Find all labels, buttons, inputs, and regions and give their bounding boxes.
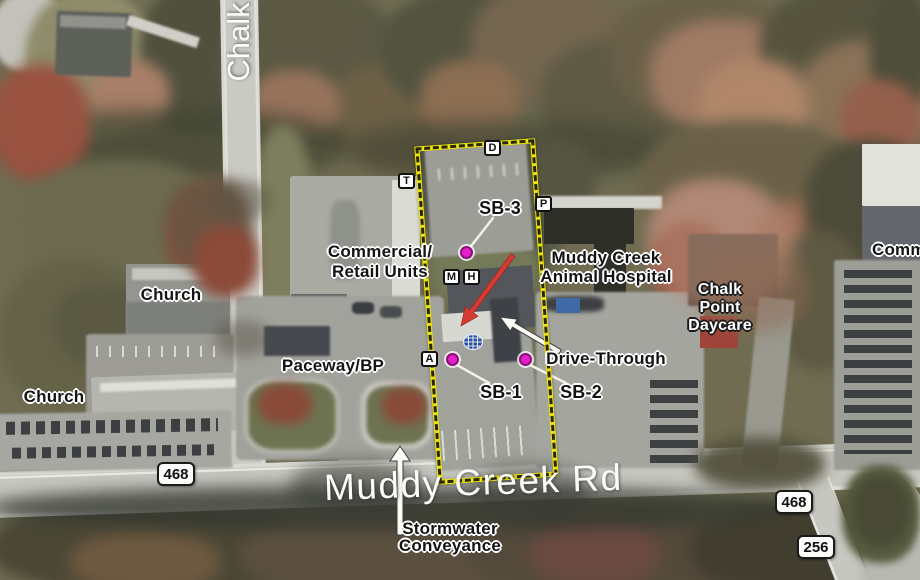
marker-h: H	[463, 269, 480, 285]
site-boundary-outline	[414, 138, 558, 485]
daycare-line1: Chalk	[670, 281, 770, 299]
commercial-right-label: Comm	[872, 240, 920, 260]
route-468-shield-left: 468	[157, 462, 195, 486]
church-upper-label: Church	[111, 285, 231, 305]
commercial-retail-label: Commercial/ Retail Units	[300, 242, 460, 282]
commercial-retail-line1: Commercial/	[300, 242, 460, 262]
daycare-line3: Daycare	[670, 317, 770, 335]
stormwater-line1: Stormwater	[380, 520, 520, 537]
boring-sb3-dot	[460, 246, 473, 259]
sb3-label: SB-3	[460, 198, 540, 219]
daycare-line2: Point	[670, 299, 770, 317]
route-468-shield-right: 468	[775, 490, 813, 514]
sb2-label: SB-2	[541, 382, 621, 403]
boring-sb2-dot	[519, 353, 532, 366]
marker-d: D	[484, 140, 501, 156]
daycare-label: Chalk Point Daycare	[670, 281, 770, 335]
marker-t: T	[398, 173, 415, 189]
aerial-map-figure[interactable]: D T P M H A Church Church Commercial/ Re…	[0, 0, 920, 580]
drive-through-label: Drive-Through	[536, 349, 676, 369]
church-lower-label: Church	[0, 387, 114, 407]
route-256-shield: 256	[797, 535, 835, 559]
animal-hospital-label: Muddy Creek Animal Hospital	[526, 248, 686, 286]
stormwater-label: Stormwater Conveyance	[380, 520, 520, 554]
paceway-bp-label: Paceway/BP	[263, 356, 403, 376]
commercial-retail-line2: Retail Units	[300, 262, 460, 282]
animal-hospital-line1: Muddy Creek	[526, 248, 686, 267]
chalk-road-label: Chalk	[221, 0, 265, 117]
sb1-label: SB-1	[461, 382, 541, 403]
boring-sb1-dot	[446, 353, 459, 366]
stormwater-line2: Conveyance	[380, 537, 520, 554]
marker-a: A	[421, 351, 438, 367]
animal-hospital-line2: Animal Hospital	[526, 267, 686, 286]
